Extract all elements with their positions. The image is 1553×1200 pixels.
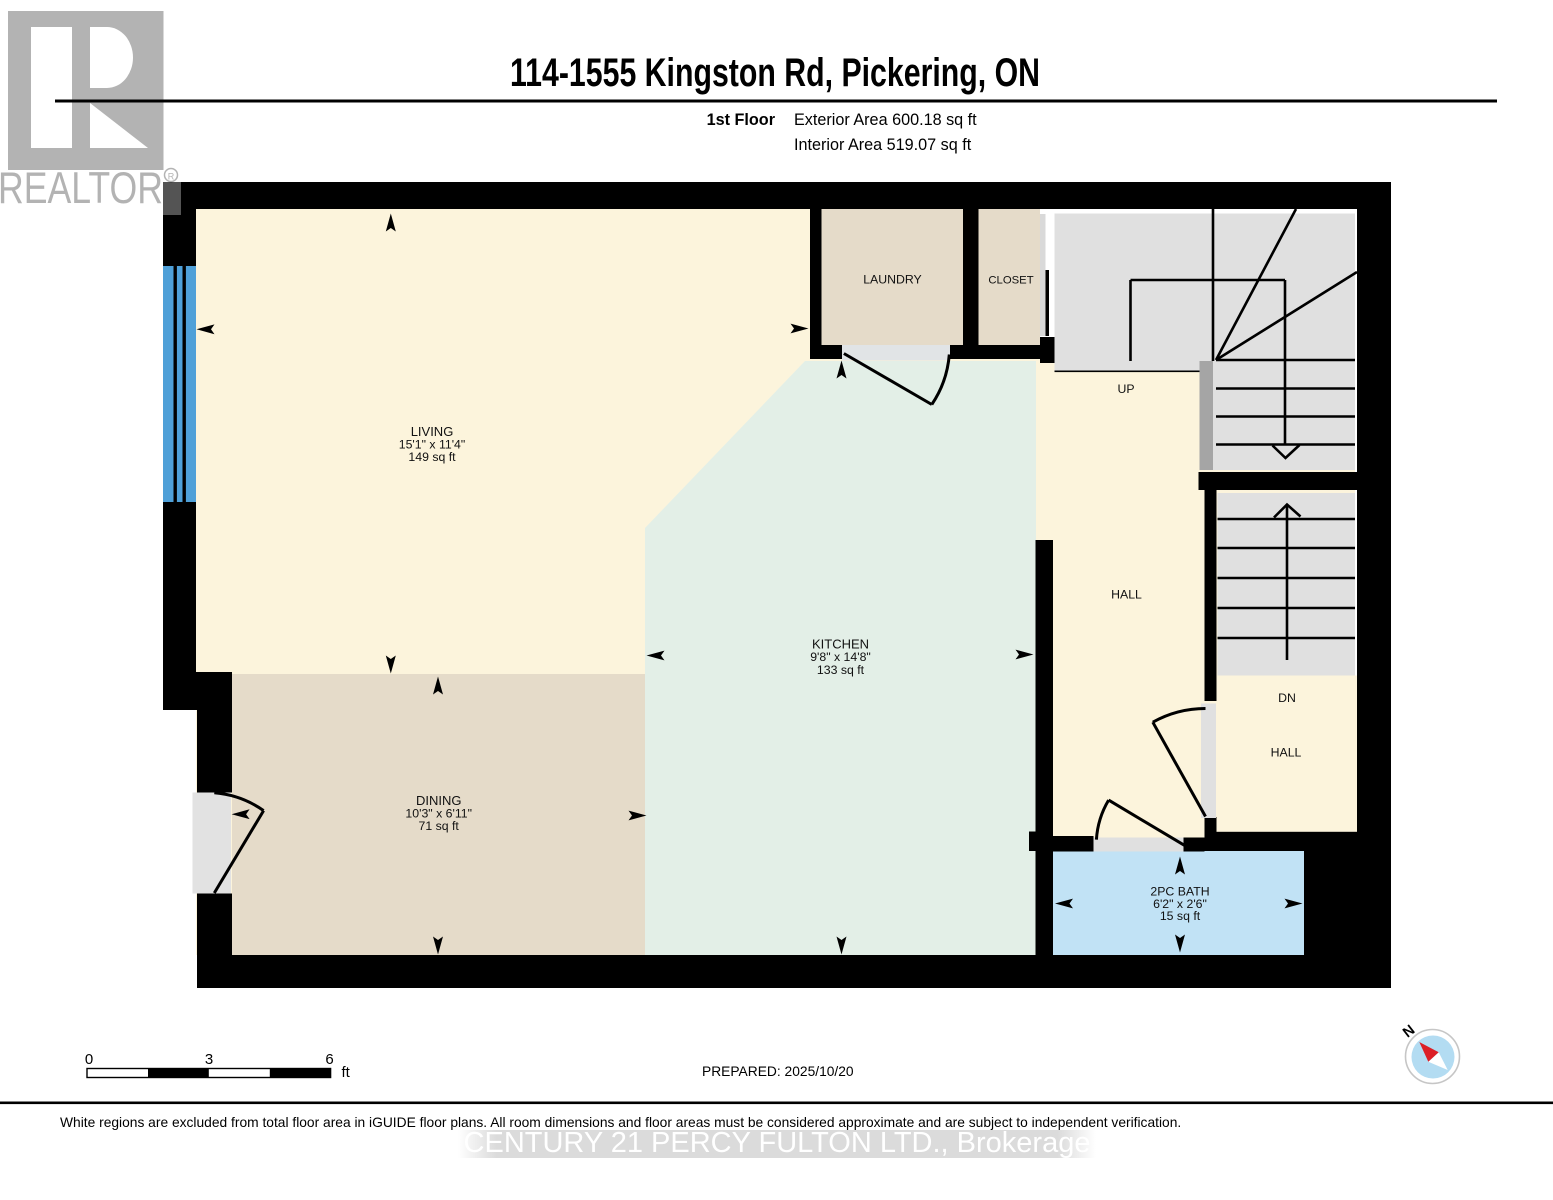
svg-text:CENTURY 21 PERCY FULTON LTD.,: CENTURY 21 PERCY FULTON LTD., Brokerage [464,1127,1091,1159]
svg-text:Exterior Area 600.18 sq ft: Exterior Area 600.18 sq ft [794,111,977,129]
svg-text:HALL: HALL [1111,588,1142,602]
svg-text:Interior Area 519.07 sq ft: Interior Area 519.07 sq ft [794,136,972,154]
svg-text:PREPARED: 2025/10/20: PREPARED: 2025/10/20 [702,1064,854,1079]
svg-text:R: R [168,172,175,182]
svg-text:3: 3 [205,1051,213,1068]
svg-text:1st Floor: 1st Floor [707,111,776,129]
svg-text:149 sq ft: 149 sq ft [408,450,456,464]
svg-text:0: 0 [85,1051,93,1068]
svg-text:6: 6 [325,1051,333,1068]
svg-text:DN: DN [1278,691,1296,705]
svg-text:9'8" x 14'8": 9'8" x 14'8" [810,650,871,664]
svg-text:CLOSET: CLOSET [988,275,1033,287]
svg-text:UP: UP [1117,382,1134,396]
svg-text:114-1555 Kingston Rd, Pickerin: 114-1555 Kingston Rd, Pickering, ON [510,50,1040,95]
svg-text:71 sq ft: 71 sq ft [419,819,460,833]
svg-text:REALTOR: REALTOR [0,164,163,213]
svg-text:LAUNDRY: LAUNDRY [863,273,922,287]
svg-text:15 sq ft: 15 sq ft [1160,909,1201,923]
svg-text:HALL: HALL [1271,746,1302,760]
svg-text:ft: ft [342,1064,351,1081]
svg-text:133 sq ft: 133 sq ft [817,663,865,677]
